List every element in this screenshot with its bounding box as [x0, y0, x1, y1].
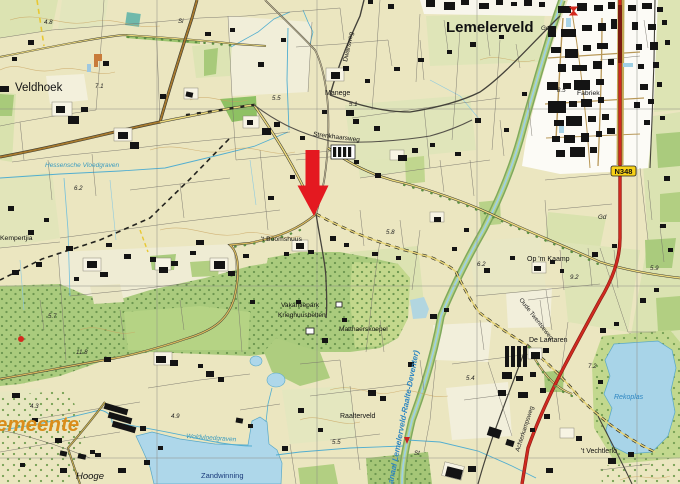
svg-text:Fabriek: Fabriek	[577, 90, 600, 97]
svg-text:5.8: 5.8	[386, 229, 395, 236]
svg-text:Manege: Manege	[325, 90, 350, 97]
svg-text:Raalterveld: Raalterveld	[340, 413, 376, 420]
svg-text:5.9: 5.9	[650, 265, 659, 272]
svg-text:6.2: 6.2	[477, 261, 486, 268]
svg-text:emeente: emeente	[0, 413, 79, 436]
svg-text:5.4: 5.4	[466, 375, 475, 382]
svg-text:Veldhoek: Veldhoek	[15, 82, 63, 94]
svg-text:Lemelerveld: Lemelerveld	[446, 19, 534, 36]
svg-text:4.3: 4.3	[30, 403, 39, 410]
svg-text:4.8: 4.8	[44, 19, 53, 26]
svg-text:Hooge: Hooge	[76, 471, 104, 482]
svg-text:St: St	[414, 450, 420, 457]
svg-text:6.2: 6.2	[74, 185, 83, 192]
svg-text:5.7: 5.7	[48, 313, 57, 320]
svg-text:'t Vechtlerlo: 't Vechtlerlo	[581, 448, 617, 455]
svg-text:Op 'm Kaamp: Op 'm Kaamp	[527, 256, 570, 263]
svg-text:Kempertjia: Kempertjia	[0, 235, 33, 242]
svg-text:Si: Si	[178, 18, 184, 25]
svg-text:Krieghuusbelten: Krieghuusbelten	[278, 312, 326, 319]
svg-text:11.8: 11.8	[76, 349, 88, 356]
svg-text:Gd: Gd	[598, 214, 607, 221]
svg-text:Vakantiepark: Vakantiepark	[281, 302, 320, 309]
svg-text:7.1: 7.1	[95, 83, 104, 90]
svg-text:7.2: 7.2	[588, 363, 597, 370]
svg-text:5.1: 5.1	[349, 101, 358, 108]
svg-text:'t Boomshuus: 't Boomshuus	[261, 236, 303, 243]
svg-text:N348: N348	[615, 167, 633, 176]
svg-text:Rekoplas: Rekoplas	[614, 394, 644, 401]
svg-text:4.9: 4.9	[171, 413, 180, 420]
svg-text:5.5: 5.5	[272, 95, 281, 102]
svg-text:Hessensche Vloedgraven: Hessensche Vloedgraven	[45, 162, 119, 169]
svg-text:5.5: 5.5	[332, 439, 341, 446]
svg-text:Zandwinning: Zandwinning	[201, 471, 244, 480]
svg-text:Gd: Gd	[541, 25, 550, 32]
svg-text:9.2: 9.2	[570, 274, 579, 281]
svg-text:Matthaerskoepel: Matthaerskoepel	[339, 326, 388, 333]
svg-text:8.5: 8.5	[557, 87, 566, 94]
